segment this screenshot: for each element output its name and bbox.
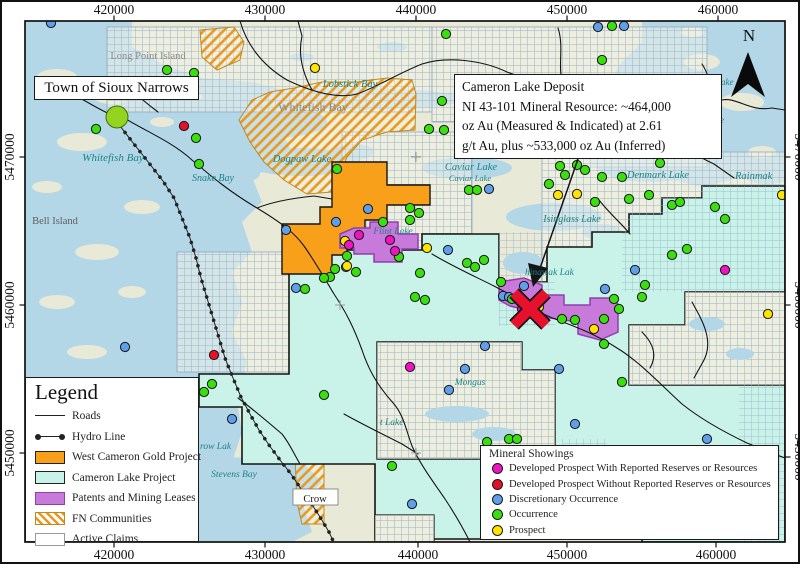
map-label: Bell Island	[32, 216, 79, 227]
discretionary-occurrence	[291, 283, 300, 292]
showings-legend-dot	[492, 463, 503, 474]
legend-item-hydro-line: Hydro Line	[35, 427, 190, 448]
occurrence	[162, 65, 171, 74]
legend-symbol-road	[35, 415, 65, 417]
showings-legend-dot	[492, 479, 503, 490]
map-label: Lobstick Bay	[322, 79, 378, 90]
developed-prospect-without-reserves	[179, 121, 188, 130]
axis-label-bottom: 440000	[398, 547, 439, 562]
prospect	[310, 63, 319, 72]
occurrence	[91, 124, 100, 133]
occurrence	[720, 214, 729, 223]
developed-prospect-with-reserves	[405, 362, 414, 371]
occurrence	[655, 158, 664, 167]
occurrence	[472, 185, 481, 194]
map-label: Caviar Lake	[445, 162, 498, 173]
discretionary-occurrence	[331, 217, 340, 226]
occurrence	[597, 55, 606, 64]
occurrence	[580, 165, 589, 174]
showings-legend-item: Developed Prospect Without Reported Rese…	[489, 476, 772, 491]
mineral-showings-items: Developed Prospect With Reported Reserve…	[489, 461, 772, 538]
occurrence	[560, 170, 569, 179]
legend-title: Legend	[35, 380, 190, 405]
developed-prospect-with-reserves	[390, 246, 399, 255]
discretionary-occurrence	[554, 364, 563, 373]
occurrence	[590, 197, 599, 206]
showings-legend-label: Prospect	[509, 525, 545, 536]
occurrence	[512, 434, 521, 443]
occurrence	[378, 217, 387, 226]
showings-legend-label: Developed Prospect With Reported Reserve…	[509, 463, 757, 474]
prospect	[572, 189, 581, 198]
occurrence	[675, 197, 684, 206]
occurrence	[415, 268, 424, 277]
legend-item-label: Patents and Mining Leases	[72, 492, 196, 504]
deposit-callout-line: g/t Au, plus ~533,000 oz Au (Inferred)	[462, 136, 714, 156]
occurrence	[387, 461, 396, 470]
showings-legend-dot	[492, 509, 503, 520]
axis-label-left: 5450000	[2, 429, 17, 477]
map-label: Rainmak	[734, 171, 773, 182]
mineral-showings-title: Mineral Showings	[489, 448, 772, 460]
occurrence	[599, 314, 608, 323]
showings-legend-label: Developed Prospect Without Reported Rese…	[509, 479, 771, 490]
developed-prospect-with-reserves	[354, 230, 363, 239]
axis-label-bottom: 460000	[696, 547, 737, 562]
occurrence	[644, 190, 653, 199]
mineral-showings-legend: Mineral Showings Developed Prospect With…	[480, 445, 779, 540]
occurrence	[470, 262, 479, 271]
axis-label-left: 5460000	[2, 281, 17, 329]
discretionary-occurrence	[630, 265, 639, 274]
occurrence	[420, 295, 429, 304]
occurrence	[437, 96, 446, 105]
occurrence	[207, 379, 216, 388]
town-marker	[106, 106, 128, 128]
deposit-callout-line: NI 43-101 Mineral Resource: ~464,000	[462, 97, 714, 117]
legend-symbol-hatch	[35, 512, 65, 525]
occurrence	[624, 194, 633, 203]
occurrence	[617, 377, 626, 386]
showings-legend-dot	[492, 525, 503, 536]
map-label: Whitefish Bay	[278, 100, 348, 114]
axis-label-right: 5460000	[792, 281, 800, 329]
axis-label-top: 420000	[94, 2, 135, 17]
occurrence	[607, 21, 616, 30]
town-callout: Town of Sioux Narrows	[34, 76, 199, 100]
axis-label-right: 5450000	[792, 433, 800, 481]
discretionary-occurrence	[46, 18, 55, 27]
map-label: t Lake	[380, 418, 403, 428]
developed-prospect-with-reserves	[720, 265, 729, 274]
occurrence	[332, 164, 341, 173]
occurrence	[414, 208, 423, 217]
occurrence	[194, 159, 203, 168]
prospect	[589, 324, 598, 333]
legend-item-west-cameron-gold-project: West Cameron Gold Project	[35, 447, 190, 468]
showings-legend-label: Discretionary Occurrence	[509, 494, 618, 505]
legend-symbol-white	[35, 533, 65, 546]
occurrence	[614, 304, 623, 313]
discretionary-occurrence	[600, 284, 609, 293]
prospect	[553, 190, 562, 199]
occurrence	[410, 292, 419, 301]
axis-label-top: 430000	[245, 2, 286, 17]
legend-item-label: Active Claims	[72, 533, 138, 545]
discretionary-occurrence	[120, 342, 129, 351]
showings-legend-dot	[492, 494, 503, 505]
occurrence	[342, 251, 351, 260]
map-label: Caviar Lake	[449, 173, 491, 183]
showings-legend-item: Occurrence	[489, 507, 772, 522]
legend-item-cameron-lake-project: Cameron Lake Project	[35, 468, 190, 489]
legend-item-label: Hydro Line	[72, 431, 125, 443]
map-label: Isinglass Lake	[542, 214, 601, 225]
map-label: ake	[721, 77, 734, 87]
map-label: Mongus	[454, 378, 486, 388]
occurrence	[479, 255, 488, 264]
occurrence	[424, 124, 433, 133]
occurrence	[640, 280, 649, 289]
map-label: Snake Bay	[192, 173, 234, 184]
discretionary-occurrence	[444, 385, 453, 394]
showings-legend-item: Prospect	[489, 523, 772, 538]
occurrence	[667, 250, 676, 259]
axis-label-bottom: 430000	[245, 547, 286, 562]
developed-prospect-with-reserves	[344, 240, 353, 249]
occurrence	[682, 244, 691, 253]
occurrence	[405, 203, 414, 212]
occurrence	[617, 172, 626, 181]
occurrence	[319, 273, 328, 282]
axis-label-bottom: 450000	[547, 547, 588, 562]
occurrence	[557, 314, 566, 323]
deposit-callout-line: Cameron Lake Deposit	[462, 77, 714, 97]
occurrence	[570, 315, 579, 324]
legend-item-roads: Roads	[35, 406, 190, 427]
occurrence	[599, 339, 608, 348]
town-callout-text: Town of Sioux Narrows	[44, 80, 188, 97]
legend-symbol-cyan	[35, 471, 65, 484]
occurrence	[319, 390, 328, 399]
map-label: row Lak	[200, 442, 232, 452]
prospect	[763, 309, 772, 318]
map-figure: Long Point IslandWhitefish BayWhitefish …	[0, 0, 800, 564]
occurrence	[300, 284, 309, 293]
map-label: Long Point Island	[110, 51, 186, 62]
discretionary-occurrence	[480, 341, 489, 350]
axis-label-top: 450000	[547, 2, 588, 17]
legend-symbol-purple	[35, 492, 65, 505]
axis-label-right: 5470000	[792, 133, 800, 181]
occurrence	[710, 202, 719, 211]
occurrence	[555, 161, 564, 170]
map-label: Stevens Bay	[211, 470, 257, 480]
showings-legend-item: Discretionary Occurrence	[489, 492, 772, 507]
occurrence	[637, 292, 646, 301]
discretionary-occurrence	[363, 204, 372, 213]
discretionary-occurrence	[443, 245, 452, 254]
axis-label-left: 5470000	[2, 133, 17, 181]
occurrence	[597, 172, 606, 181]
legend-item-patents-and-mining-leases: Patents and Mining Leases	[35, 488, 190, 509]
showings-legend-item: Developed Prospect With Reported Reserve…	[489, 461, 772, 476]
developed-prospect-without-reserves	[209, 350, 218, 359]
legend-item-label: West Cameron Gold Project	[72, 451, 201, 463]
discretionary-occurrence	[593, 22, 602, 31]
discretionary-occurrence	[619, 21, 628, 30]
occurrence	[441, 29, 450, 38]
occurrence	[351, 267, 360, 276]
map-label: hinawak Lak	[525, 268, 575, 278]
occurrence	[609, 294, 618, 303]
legend-panel: Legend RoadsHydro LineWest Cameron Gold …	[25, 377, 199, 542]
occurrence	[330, 264, 339, 273]
axis-label-top: 460000	[698, 2, 739, 17]
legend-item-fn-communities: FN Communities	[35, 509, 190, 530]
map-label: Denmark Lake	[626, 170, 689, 181]
occurrence	[191, 133, 200, 142]
map-label: Crow	[303, 494, 327, 505]
discretionary-occurrence	[281, 225, 290, 234]
discretionary-occurrence	[570, 419, 579, 428]
map-label: Dogpaw Lake	[272, 154, 332, 165]
occurrence	[544, 179, 553, 188]
legend-item-label: Roads	[72, 410, 101, 422]
north-label: N	[738, 26, 760, 46]
occurrence	[439, 125, 448, 134]
legend-item-active-claims: Active Claims	[35, 529, 190, 550]
prospect	[342, 261, 351, 270]
legend-symbol-orange	[35, 451, 65, 464]
prospect	[422, 243, 431, 252]
discretionary-occurrence	[407, 499, 416, 508]
legend-item-label: Cameron Lake Project	[72, 472, 175, 484]
occurrence	[199, 387, 208, 396]
deposit-callout-line: oz Au (Measured & Indicated) at 2.61	[462, 116, 714, 136]
occurrence	[496, 277, 505, 286]
occurrence	[405, 215, 414, 224]
discretionary-occurrence	[484, 184, 493, 193]
showings-legend-label: Occurrence	[509, 509, 558, 520]
map-label: Whitefish Bay	[82, 152, 144, 164]
axis-label-top: 440000	[396, 2, 437, 17]
deposit-callout: Cameron Lake Deposit NI 43-101 Mineral R…	[454, 74, 722, 159]
legend-symbol-hydro	[35, 433, 65, 441]
discretionary-occurrence	[702, 434, 711, 443]
legend-item-label: FN Communities	[72, 513, 152, 525]
discretionary-occurrence	[227, 414, 236, 423]
map-label: Flint Lake	[372, 227, 412, 237]
discretionary-occurrence	[460, 364, 469, 373]
legend-items: RoadsHydro LineWest Cameron Gold Project…	[35, 406, 190, 550]
discretionary-occurrence	[519, 281, 528, 290]
